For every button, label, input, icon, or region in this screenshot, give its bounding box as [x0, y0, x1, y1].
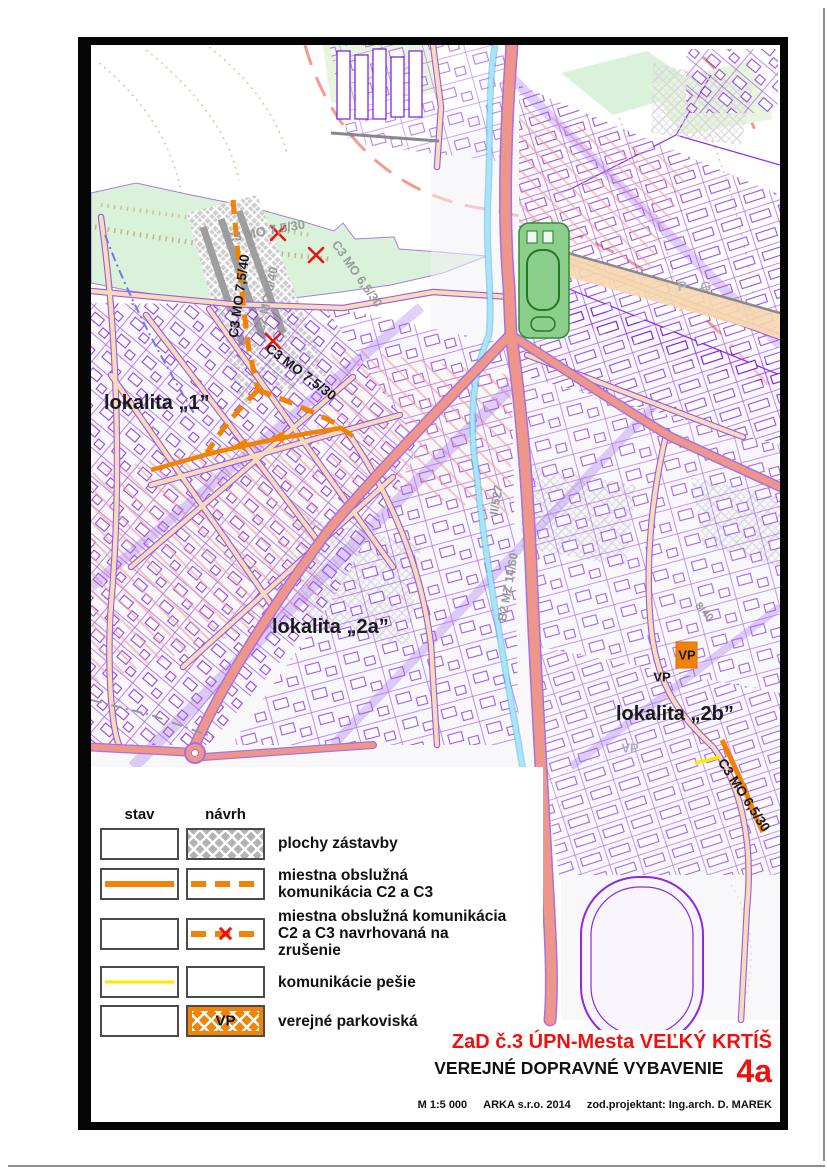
sheet-meta: M 1:5 000 ARKA s.r.o. 2014 zod.projektan… [416, 1099, 772, 1111]
legend-header-navrh: návrh [186, 806, 265, 823]
label-vp-gray: VP [621, 741, 638, 756]
map-legend: stav návrh plochy zástavby miestna obslu… [100, 806, 512, 1044]
title-block: ZaD č.3 ÚPN-Mesta VEĽKÝ KRTÍŠ VEREJNÉ DO… [416, 1031, 772, 1111]
firm-name: ARKA s.r.o. 2014 [483, 1099, 571, 1111]
legend-row-komunikacia: miestna obslužná komunikácia C2 a C3 [100, 867, 512, 901]
designer-name: zod.projektant: Ing.arch. D. MAREK [587, 1099, 772, 1111]
label-lokalita-2a: lokalita „2a” [272, 616, 389, 639]
legend-swatch-zrusenie-navrh [186, 918, 265, 950]
legend-swatch-zastavba-navrh [186, 828, 265, 860]
map-sheet-page: lokalita „1” lokalita „2a” lokalita „2b”… [0, 0, 827, 1169]
orange-dash-swatch [191, 881, 260, 887]
sheet-title: ZaD č.3 ÚPN-Mesta VEĽKÝ KRTÍŠ [416, 1031, 772, 1054]
legend-row-zrusenie: miestna obslužná komunikácia C2 a C3 nav… [100, 908, 512, 959]
label-vp-2: VP [653, 670, 670, 685]
paper-edge-right [823, 8, 825, 1161]
legend-label: miestna obslužná komunikácia C2 a C3 nav… [278, 908, 512, 959]
legend-swatch-zastavba-stav [100, 828, 179, 860]
cancel-x-icon [218, 926, 233, 941]
legend-label: komunikácie pešie [278, 974, 416, 991]
legend-swatch-komunikacia-stav [100, 868, 179, 900]
legend-label: plochy zástavby [278, 835, 398, 852]
map-scale: M 1:5 000 [418, 1099, 468, 1111]
yellow-line-swatch [105, 981, 174, 984]
legend-row-pesie: komunikácie pešie [100, 966, 512, 998]
gray-crosshatch-swatch [188, 830, 263, 858]
legend-header-stav: stav [100, 806, 179, 823]
paper-edge-bottom [8, 1165, 825, 1167]
label-lokalita-2b: lokalita „2b” [616, 703, 734, 726]
legend-swatch-pesie-navrh [186, 966, 265, 998]
legend-label: verejné parkoviská [278, 1013, 418, 1030]
legend-label: miestna obslužná komunikácia C2 a C3 [278, 867, 433, 901]
legend-swatch-parkoviska-navrh: VP [186, 1005, 265, 1037]
legend-swatch-pesie-stav [100, 966, 179, 998]
legend-swatch-komunikacia-navrh [186, 868, 265, 900]
legend-headers: stav návrh [100, 806, 512, 823]
legend-swatch-zrusenie-stav [100, 918, 179, 950]
sheet-subtitle: VEREJNÉ DOPRAVNÉ VYBAVENIE [434, 1056, 723, 1079]
label-lokalita-1: lokalita „1” [104, 392, 210, 415]
label-pg: P G [678, 278, 717, 294]
legend-row-zastavba: plochy zástavby [100, 828, 512, 860]
orange-line-swatch [105, 881, 174, 887]
sheet-number: 4a [736, 1056, 772, 1086]
vp-symbol: VP [188, 1013, 263, 1030]
legend-swatch-parkoviska-stav [100, 1005, 179, 1037]
label-vp-1: VP [678, 648, 695, 663]
